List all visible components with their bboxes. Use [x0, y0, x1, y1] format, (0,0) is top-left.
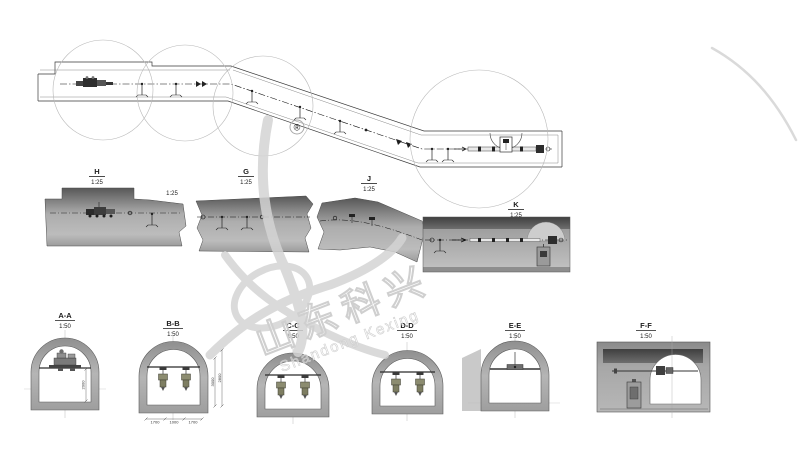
profile-k-label: K: [513, 200, 519, 209]
profile-j-body: [317, 198, 425, 262]
section-ff: F-F 1:50: [597, 321, 710, 418]
section-bb: 3000 2800 1700 1000 1700 B-B 1:50: [139, 319, 224, 425]
section-ff-cabinet: [627, 379, 641, 408]
plan-centerline: [60, 84, 552, 149]
section-aa-scale: 1:50: [59, 324, 71, 330]
section-bb-opening: [147, 350, 200, 406]
section-ff-label: F-F: [640, 321, 652, 330]
profile-h: H 1:25 1:25: [45, 167, 186, 246]
profile-j-label: J: [367, 174, 371, 183]
section-bb-label-group: B-B 1:50: [163, 319, 183, 338]
profile-h-body: [45, 188, 186, 246]
section-aa-label: A-A: [58, 311, 72, 320]
profile-g: G 1:25: [196, 167, 313, 252]
profile-g-body: [196, 196, 313, 252]
tunnel-drawing: H 1:25 1:25 G 1:25 J: [0, 0, 800, 450]
section-ff-scale: 1:50: [640, 334, 652, 340]
plan-cabinet: [500, 137, 512, 152]
profile-h-right-scale: 1:25: [166, 191, 178, 197]
detail-callout-circles: [53, 40, 548, 208]
plan-right-equipment: [426, 145, 550, 162]
section-aa: 2000 A-A 1:50: [24, 311, 106, 418]
bb-height-inner-dim: 3000: [210, 377, 215, 387]
section-dd-scale: 1:50: [401, 334, 413, 340]
profile-h-scale: 1:25: [91, 180, 103, 186]
section-ee-label-group: E-E 1:50: [505, 321, 525, 340]
bb-width-right-dim: 1700: [189, 420, 199, 425]
section-ee-side-shading: [462, 349, 481, 411]
bb-height-outer-dim: 2800: [217, 373, 222, 383]
section-bb-scale: 1:50: [167, 332, 179, 338]
section-ee: E-E 1:50: [462, 321, 560, 418]
profile-j: J 1:25: [317, 174, 425, 262]
cad-drawing-canvas: H 1:25 1:25 G 1:25 J: [0, 0, 800, 450]
profile-g-scale: 1:25: [240, 180, 252, 186]
profile-h-label: H: [94, 167, 99, 176]
plan-transition-fittings: [396, 139, 412, 148]
profile-k-floor-band: [423, 267, 570, 272]
registered-symbol: ®: [294, 123, 301, 133]
profile-k-label-group: K 1:25: [508, 200, 524, 219]
bb-width-left-dim: 1700: [151, 420, 161, 425]
section-aa-label-group: A-A 1:50: [55, 311, 75, 330]
section-ff-opening: [650, 355, 701, 405]
aa-height-dim: 2000: [81, 380, 86, 390]
profile-k: K 1:25: [423, 200, 570, 272]
profile-j-label-group: J 1:25: [361, 174, 377, 193]
plan-roadheader-machine: [76, 76, 113, 87]
profile-g-label-group: G 1:25: [238, 167, 254, 186]
section-ee-scale: 1:50: [509, 334, 521, 340]
profile-j-scale: 1:25: [363, 187, 375, 193]
profile-g-label: G: [243, 167, 249, 176]
section-ff-label-group: F-F 1:50: [636, 321, 656, 340]
profile-k-scale: 1:25: [510, 213, 522, 219]
section-bb-label: B-B: [166, 319, 180, 328]
plan-support-stand: [170, 83, 182, 97]
profile-h-label-group: H 1:25: [89, 167, 105, 186]
profile-k-cabinet: [537, 244, 550, 266]
section-bb-dimensions-bottom: 1700 1000 1700: [145, 418, 204, 425]
bb-width-mid-dim: 1000: [170, 420, 180, 425]
section-ee-label: E-E: [509, 321, 522, 330]
watermark-registered-mark: ®: [290, 120, 304, 134]
